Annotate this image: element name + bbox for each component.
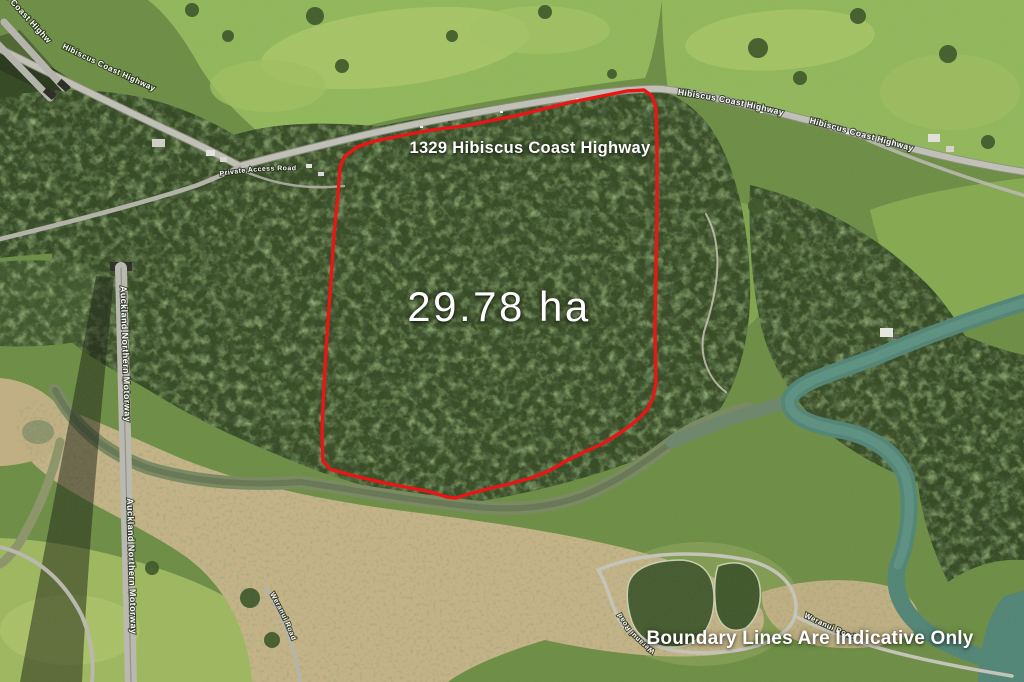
photo-grain (0, 0, 1024, 682)
boundary-disclaimer-label: Boundary Lines Are Indicative Only (646, 628, 973, 650)
aerial-map-canvas: Hibiscus Coast Highway Hibiscus Coast Hi… (0, 0, 1024, 682)
property-address-label: 1329 Hibiscus Coast Highway (409, 139, 650, 158)
aerial-property-map: Hibiscus Coast Highway Hibiscus Coast Hi… (0, 0, 1024, 682)
property-area-label: 29.78 ha (407, 283, 591, 331)
